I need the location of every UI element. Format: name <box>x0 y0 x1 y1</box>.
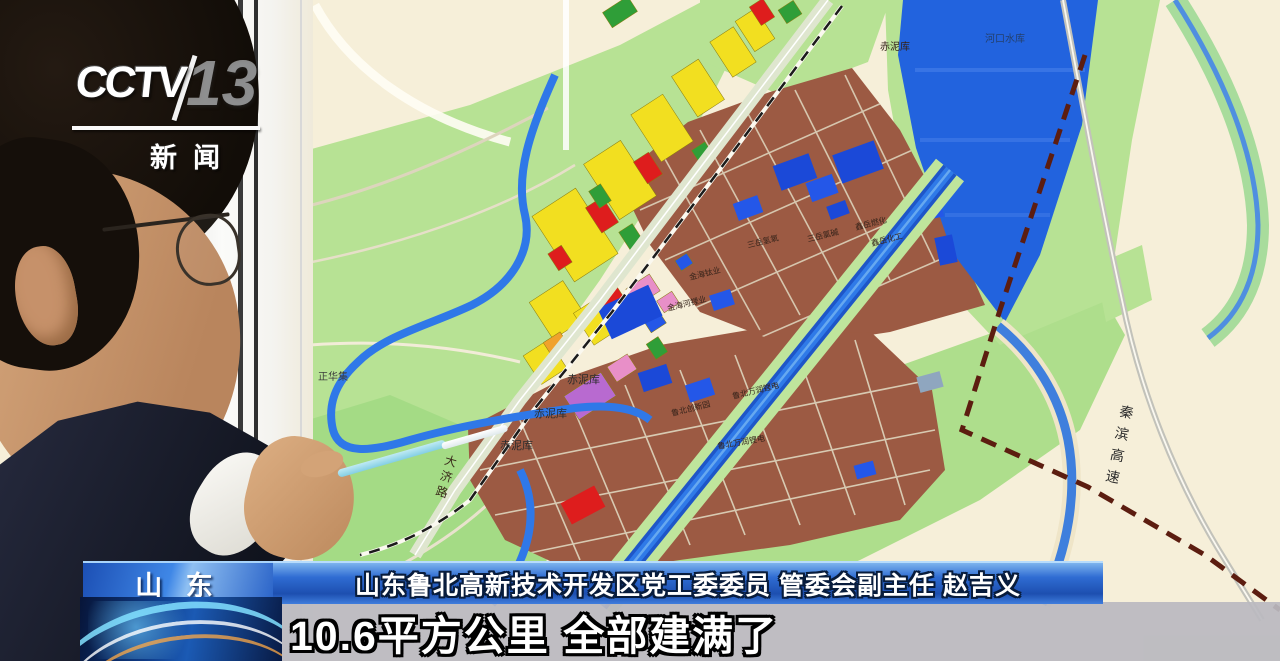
label-red-mud-2: 赤泥库 <box>534 407 567 420</box>
label-zhenghuaji: 正华集 <box>318 370 348 383</box>
speaker-strap-text: 山东鲁北高新技术开发区党工委委员 管委会副主任 赵吉义 <box>355 566 1021 602</box>
logo-underline <box>72 126 260 130</box>
label-red-mud-1: 赤泥库 <box>567 373 600 386</box>
subtitle-bar: 10.6平方公里 全部建满了 <box>210 602 1280 661</box>
tv-frame: 河口水库 赤泥库 赤泥库 赤泥库 赤泥库 正华集 金海钛业 金海河锂业 三岳氢氧… <box>0 0 1280 661</box>
news-swoosh-graphic <box>80 597 282 661</box>
cctv-wordmark: CCTV <box>73 58 186 108</box>
label-reservoir: 河口水库 <box>985 32 1025 45</box>
label-red-mud-3: 赤泥库 <box>500 439 533 452</box>
speaker-strap: 山东鲁北高新技术开发区党工委委员 管委会副主任 赵吉义 <box>273 561 1103 604</box>
channel-name: 新闻 <box>150 136 236 175</box>
label-red-mud-top: 赤泥库 <box>880 40 910 53</box>
subtitle-text: 10.6平方公里 全部建满了 <box>290 602 778 661</box>
channel-logo: 13 CCTV 新闻 <box>70 46 280 166</box>
